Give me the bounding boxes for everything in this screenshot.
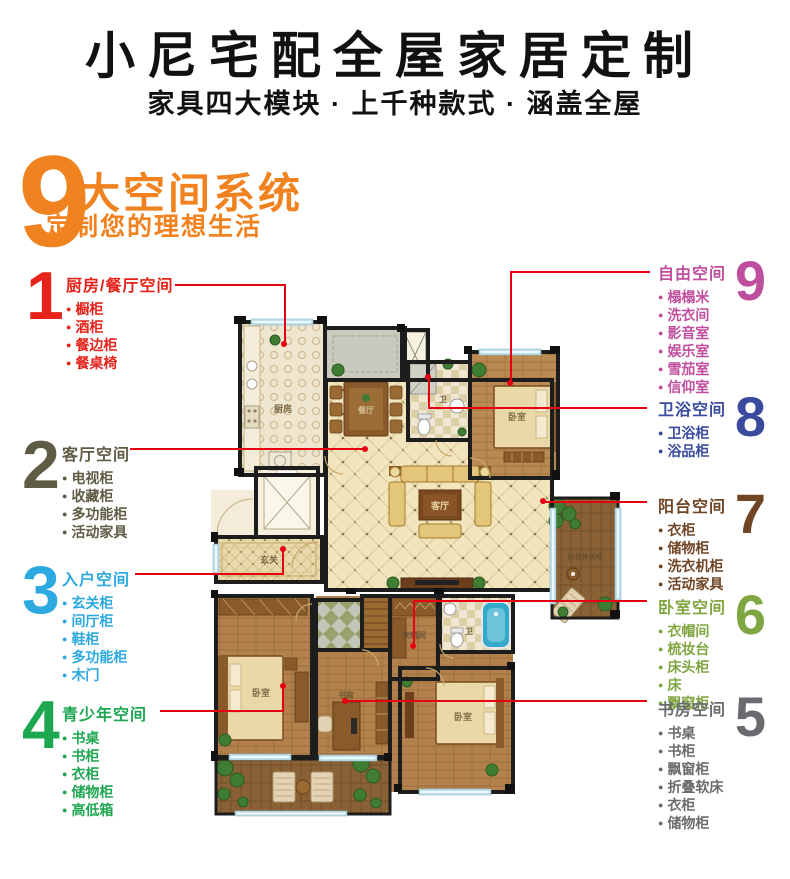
list-item: 间厅柜 xyxy=(62,613,130,631)
list-item: 影音室 xyxy=(658,325,766,343)
list-item: 收藏柜 xyxy=(62,488,130,506)
list-item: 鞋柜 xyxy=(62,631,130,649)
label-bedroom-top-right: 卧室 xyxy=(508,411,526,422)
space-panel-living: 2 客厅空间 电视柜收藏柜多功能柜活动家具 xyxy=(22,437,130,542)
list-item: 餐边柜 xyxy=(66,337,173,355)
space-panel-teen: 4 青少年空间 书桌书柜衣柜储物柜高低箱 xyxy=(22,697,147,820)
panel-title: 厨房/餐厅空间 xyxy=(66,272,173,296)
panel-item-list: 电视柜收藏柜多功能柜活动家具 xyxy=(62,470,130,542)
list-item: 洗衣机柜 xyxy=(658,558,766,576)
space-panel-study: 5 书房空间 书桌书柜飘窗柜折叠软床衣柜储物柜 xyxy=(640,692,766,833)
panel-number: 2 xyxy=(22,437,60,493)
panel-number: 7 xyxy=(735,491,766,537)
label-balcony-right: 阳台休闲吧 xyxy=(568,552,603,561)
panel-item-list: 橱柜酒柜餐边柜餐桌椅 xyxy=(66,301,173,373)
list-item: 活动家具 xyxy=(62,524,130,542)
poster: 小尼宅配全屋家居定制 家具四大模块 · 上千种款式 · 涵盖全屋 9 大空间系统… xyxy=(0,0,790,879)
list-item: 木门 xyxy=(62,667,130,685)
list-item: 餐桌椅 xyxy=(66,355,173,373)
panel-item-list: 玄关柜间厅柜鞋柜多功能柜木门 xyxy=(62,595,130,685)
list-item: 书桌 xyxy=(62,730,147,748)
panel-number: 4 xyxy=(22,697,60,753)
label-bedroom-bottom: 卧室 xyxy=(454,711,472,722)
list-item: 多功能柜 xyxy=(62,506,130,524)
hero-subheadline: 定制您的理想生活 xyxy=(46,207,262,243)
list-item: 娱乐室 xyxy=(658,343,766,361)
panel-number: 3 xyxy=(22,562,60,618)
list-item: 床头柜 xyxy=(658,659,766,677)
list-item: 酒柜 xyxy=(66,319,173,337)
space-panel-balcony: 7 阳台空间 衣柜储物柜洗衣机柜活动家具 xyxy=(640,489,766,594)
panel-item-list: 书桌书柜衣柜储物柜高低箱 xyxy=(62,730,147,820)
label-dining: 餐厅 xyxy=(357,405,374,415)
space-panel-bathroom: 8 卫浴空间 卫浴柜浴品柜 xyxy=(640,392,766,461)
page-title: 小尼宅配全屋家居定制 xyxy=(0,16,790,88)
space-panel-kitchen-dining: 1 厨房/餐厅空间 橱柜酒柜餐边柜餐桌椅 xyxy=(26,268,173,373)
list-item: 储物柜 xyxy=(658,815,766,833)
label-living: 客厅 xyxy=(430,500,449,511)
list-item: 橱柜 xyxy=(66,301,173,319)
panel-number: 5 xyxy=(735,694,766,740)
space-panel-entry: 3 入户空间 玄关柜间厅柜鞋柜多功能柜木门 xyxy=(22,562,130,685)
panel-number: 8 xyxy=(735,394,766,440)
list-item: 衣柜 xyxy=(62,766,147,784)
list-item: 衣柜 xyxy=(658,797,766,815)
label-kitchen: 厨房 xyxy=(274,403,292,414)
list-item: 折叠软床 xyxy=(658,779,766,797)
floor-plan: 厨房 餐厅 卫 卧室 客厅 玄关 阳台休闲吧 卧室 书房 衣帽间 卫 卧室 xyxy=(211,306,625,818)
list-item: 飘窗柜 xyxy=(658,761,766,779)
list-item: 玄关柜 xyxy=(62,595,130,613)
list-item: 高低箱 xyxy=(62,802,147,820)
panel-number: 6 xyxy=(735,592,766,638)
panel-number: 9 xyxy=(735,258,766,304)
space-panel-free: 9 自由空间 榻榻米洗衣间影音室娱乐室雪茄室信仰室 xyxy=(640,256,766,397)
label-entry: 玄关 xyxy=(260,554,278,565)
list-item: 书柜 xyxy=(62,748,147,766)
label-bath-top: 卫 xyxy=(439,395,447,404)
label-bath-lower: 卫 xyxy=(465,627,473,636)
list-item: 多功能柜 xyxy=(62,649,130,667)
page-subtitle: 家具四大模块 · 上千种款式 · 涵盖全屋 xyxy=(0,82,790,121)
list-item: 电视柜 xyxy=(62,470,130,488)
label-bedroom-left: 卧室 xyxy=(252,687,270,698)
list-item: 储物柜 xyxy=(62,784,147,802)
panel-title: 入户空间 xyxy=(62,566,130,590)
panel-number: 1 xyxy=(26,268,64,324)
list-item: 雪茄室 xyxy=(658,361,766,379)
panel-title: 青少年空间 xyxy=(62,701,147,725)
panel-title: 客厅空间 xyxy=(62,441,130,465)
